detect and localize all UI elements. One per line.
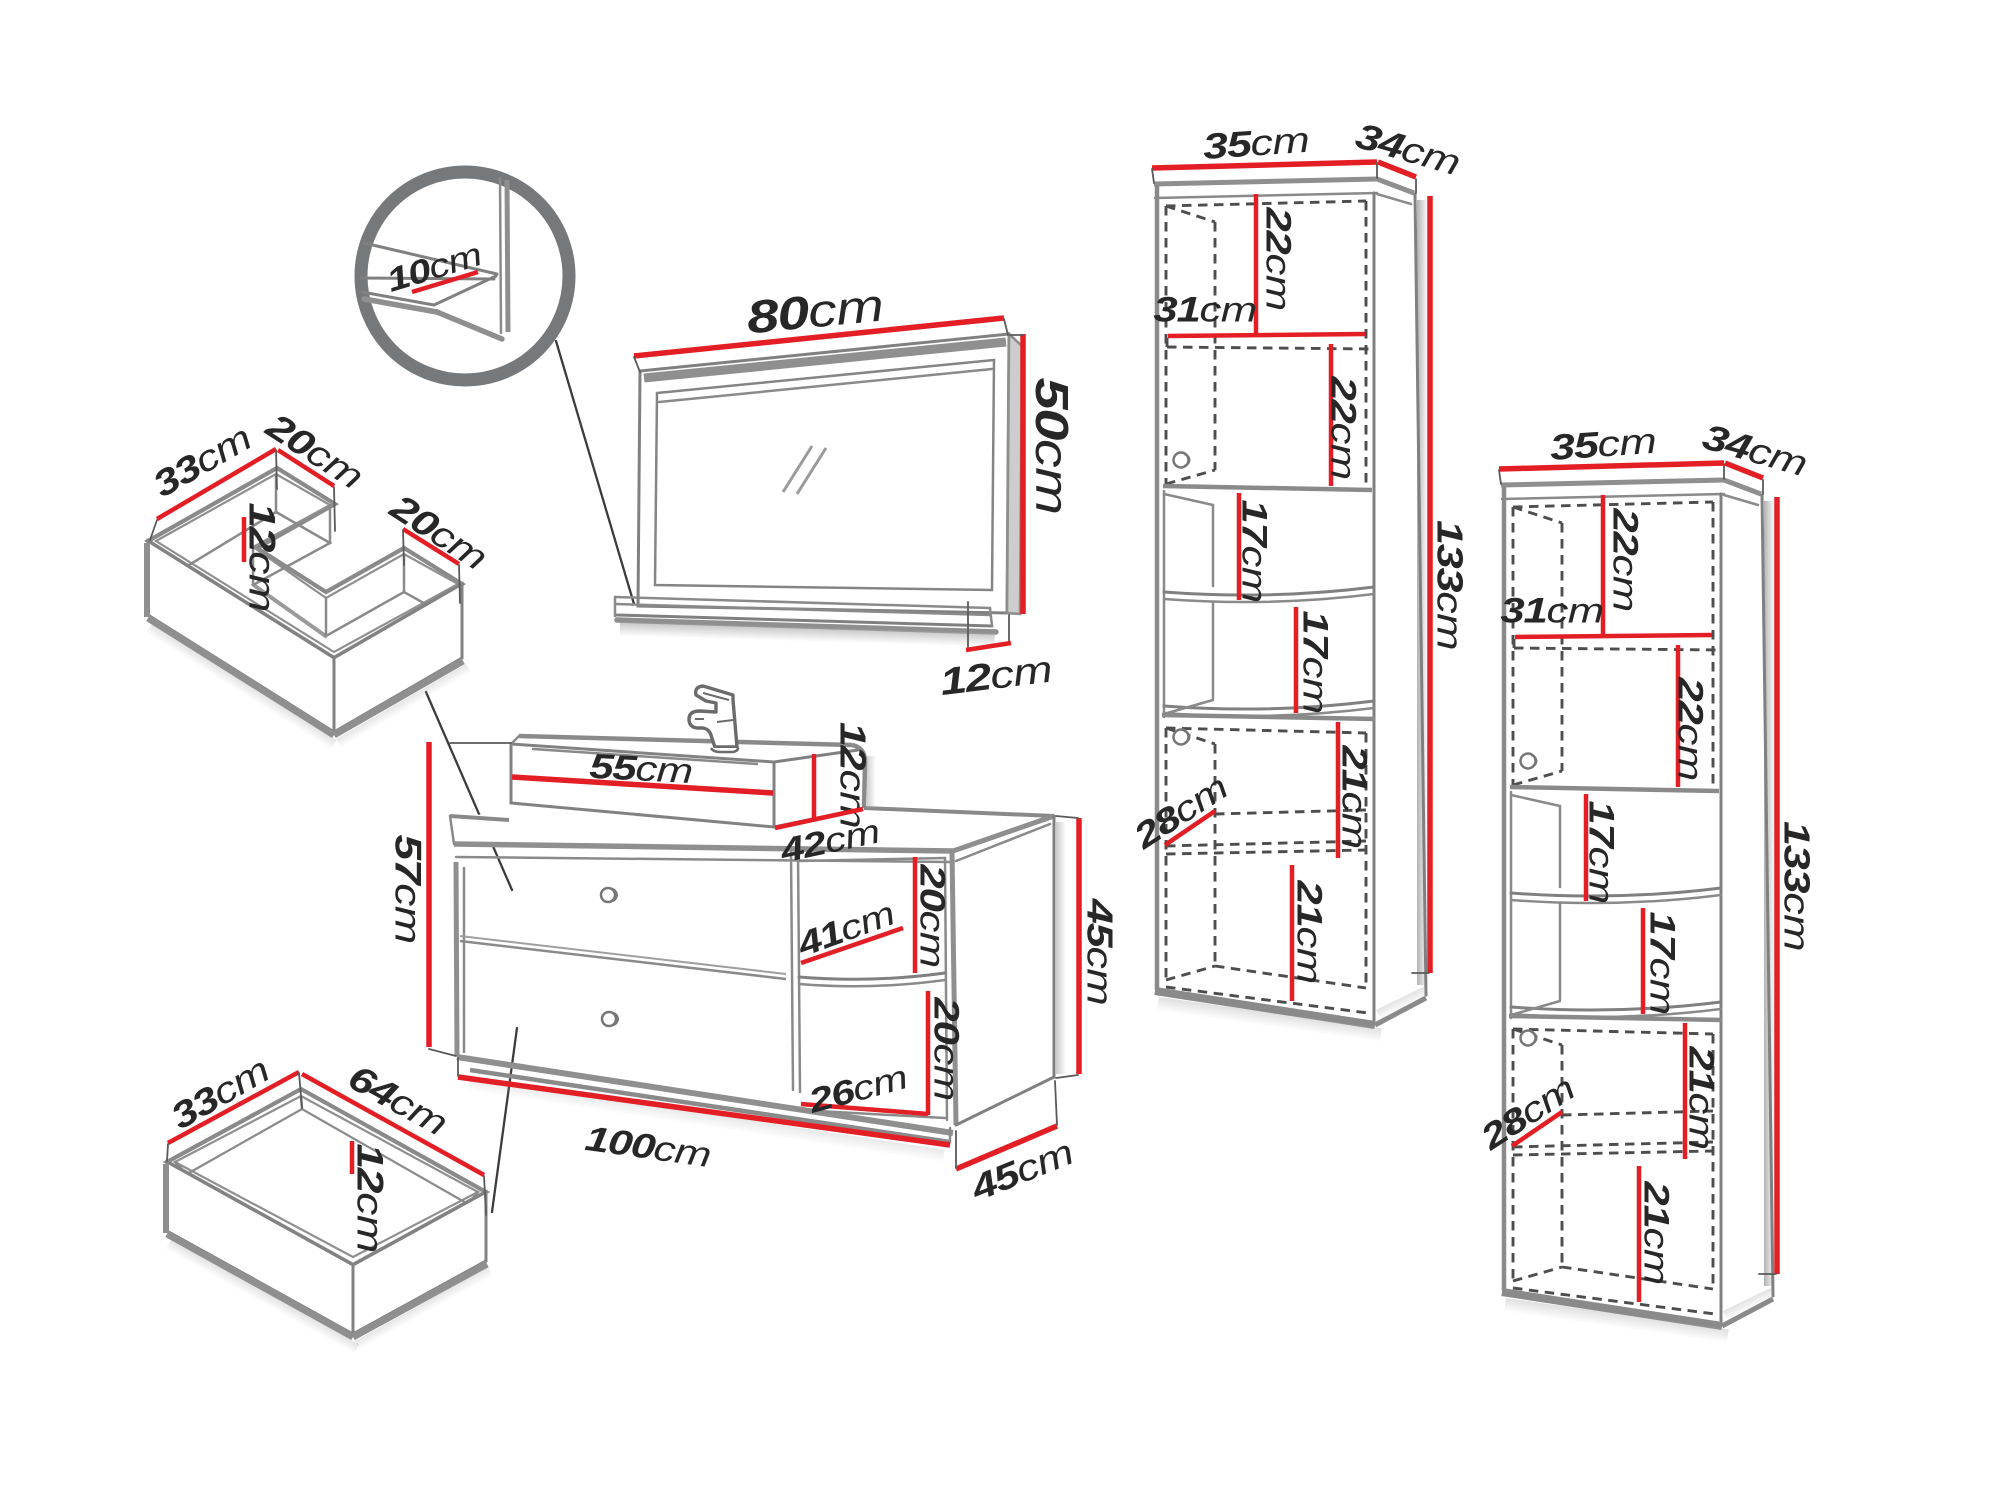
svg-text:20cm: 20cm: [927, 996, 966, 1100]
svg-text:133cm: 133cm: [1430, 520, 1471, 650]
svg-text:50cm: 50cm: [1025, 378, 1076, 515]
svg-text:22cm: 22cm: [1259, 206, 1298, 310]
svg-text:17cm: 17cm: [1296, 610, 1335, 713]
svg-text:35cm: 35cm: [1202, 119, 1311, 167]
svg-text:12cm: 12cm: [350, 1143, 392, 1252]
svg-text:21cm: 21cm: [1290, 879, 1329, 983]
svg-text:45cm: 45cm: [1080, 898, 1121, 1005]
svg-text:22cm: 22cm: [1324, 375, 1363, 479]
svg-text:57cm: 57cm: [388, 834, 430, 943]
svg-text:55cm: 55cm: [588, 747, 693, 791]
svg-text:12cm: 12cm: [242, 502, 284, 611]
svg-text:17cm: 17cm: [1235, 499, 1274, 602]
svg-text:31cm: 31cm: [1153, 291, 1256, 330]
svg-text:20cm: 20cm: [913, 863, 952, 967]
svg-text:21cm: 21cm: [1335, 744, 1374, 848]
